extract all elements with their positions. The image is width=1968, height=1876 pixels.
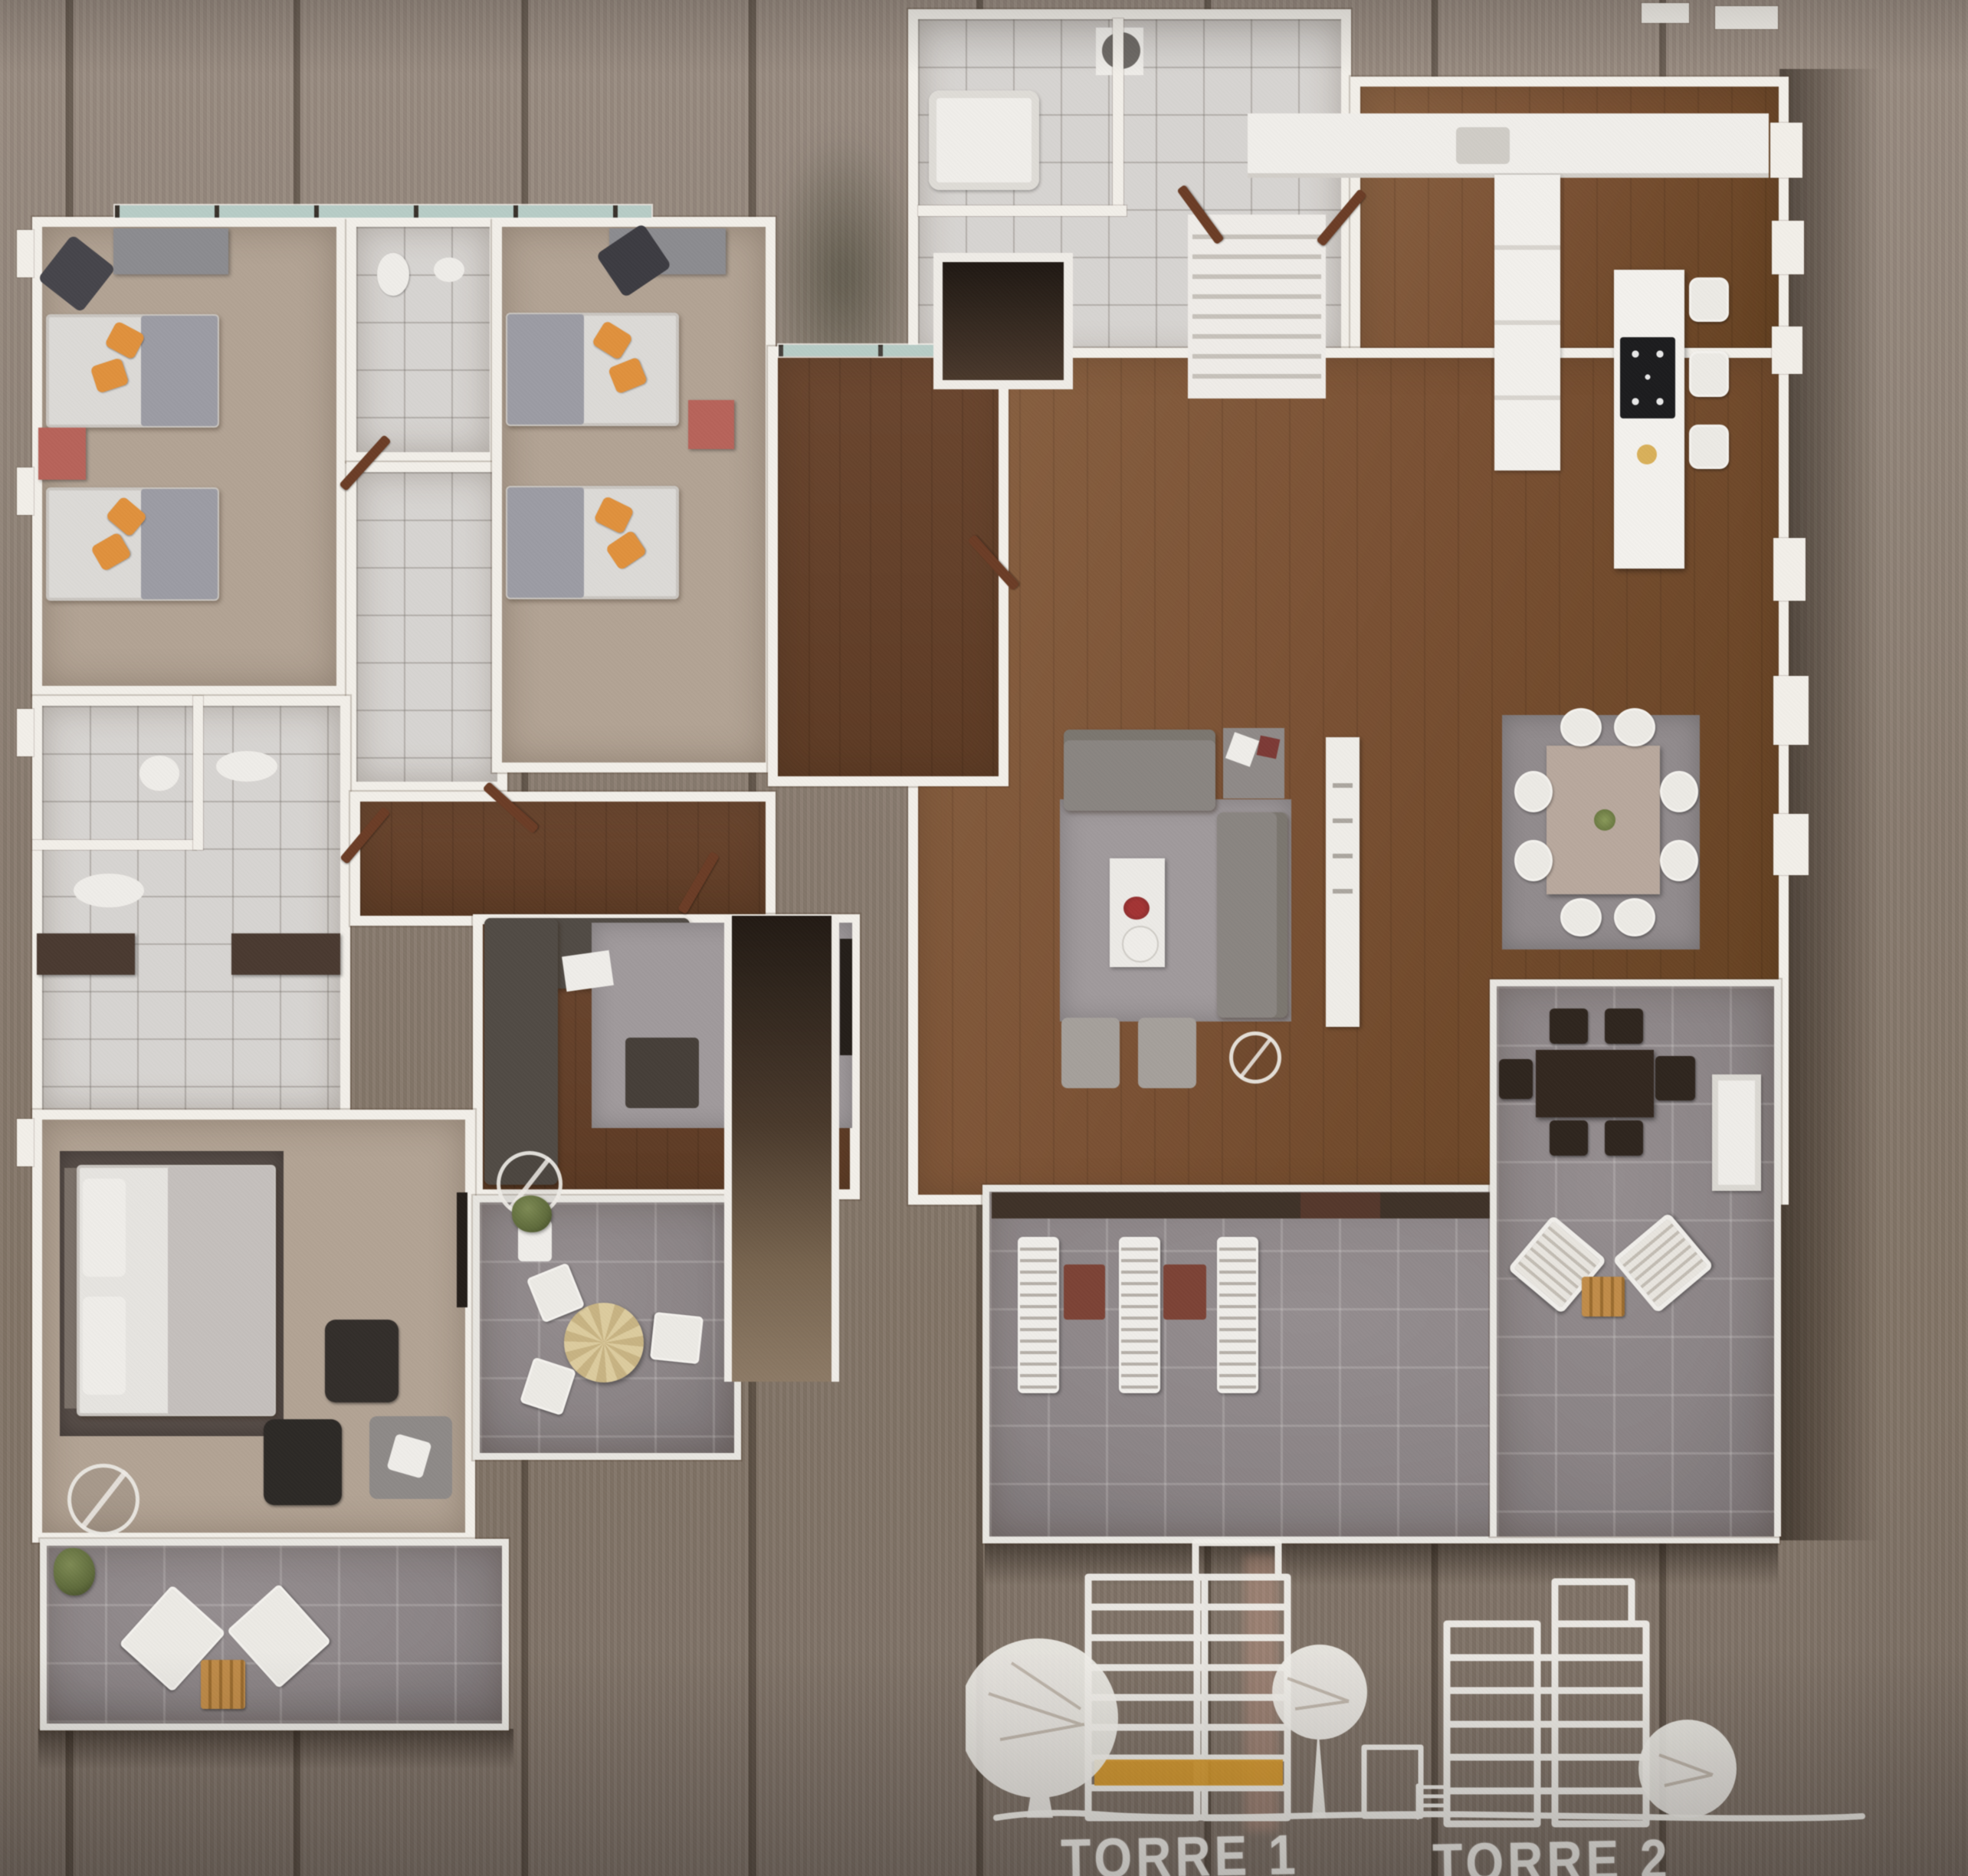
window-sill bbox=[1770, 123, 1802, 178]
tv-panel bbox=[840, 939, 852, 1055]
single-bed bbox=[506, 486, 679, 599]
kitchen-sink bbox=[1456, 127, 1510, 164]
pilaster bbox=[17, 467, 34, 515]
orange-pillow bbox=[90, 357, 129, 393]
dining-chair bbox=[1660, 840, 1698, 881]
sun-lounger bbox=[1119, 1237, 1160, 1393]
orange-pillow bbox=[90, 532, 132, 572]
master-bathroom bbox=[32, 696, 350, 1121]
parapet bbox=[1715, 6, 1778, 29]
outdoor-chair bbox=[1550, 1120, 1588, 1156]
tray bbox=[386, 1433, 431, 1478]
blanket bbox=[507, 314, 584, 425]
dining-chair bbox=[1514, 771, 1553, 812]
blanket bbox=[141, 316, 218, 426]
dining-chair bbox=[1660, 771, 1698, 812]
flowers bbox=[1123, 897, 1150, 920]
orange-pillow bbox=[593, 496, 635, 535]
elevator bbox=[933, 253, 1073, 389]
dining-chair bbox=[1614, 708, 1655, 746]
outdoor-chair bbox=[1655, 1056, 1695, 1100]
terrace-shadow-bottom-left bbox=[38, 1729, 513, 1769]
bar-stool bbox=[1689, 425, 1729, 469]
pilaster bbox=[17, 230, 34, 277]
staircase bbox=[1192, 219, 1321, 394]
sofa bbox=[1064, 730, 1215, 811]
terrace-side-table bbox=[201, 1660, 245, 1709]
vanity-dark bbox=[37, 933, 135, 975]
nightstand-red bbox=[38, 428, 86, 480]
ottoman-dark bbox=[625, 1038, 699, 1108]
fan-blade bbox=[1238, 1037, 1272, 1078]
dresser bbox=[113, 228, 228, 274]
orange-pillow bbox=[605, 530, 648, 570]
headboard bbox=[64, 1168, 77, 1409]
tower2-sketch bbox=[1447, 1582, 1646, 1824]
dining-chair bbox=[1614, 898, 1655, 936]
outdoor-chair bbox=[1550, 1009, 1588, 1044]
balcony-glass-top bbox=[115, 205, 651, 218]
blanket bbox=[507, 487, 584, 598]
floor-plan-photo: TORRE 1 TORRE 2 bbox=[0, 0, 1968, 1876]
orange-pillow bbox=[608, 356, 648, 394]
orange-pillow bbox=[104, 320, 146, 360]
side-table bbox=[1223, 728, 1284, 799]
ceiling-fan bbox=[1229, 1031, 1281, 1084]
king-bed bbox=[77, 1165, 276, 1416]
bathtub bbox=[929, 90, 1039, 190]
window-sill bbox=[1772, 221, 1804, 274]
outdoor-chair bbox=[1605, 1009, 1643, 1044]
blanket bbox=[141, 489, 218, 599]
pilaster bbox=[17, 709, 34, 756]
dining-chair bbox=[1560, 708, 1602, 746]
tower-elevation-sketch bbox=[966, 1517, 1893, 1876]
planter-box bbox=[1712, 1074, 1761, 1191]
window-sill bbox=[1773, 538, 1806, 601]
centerpiece bbox=[1594, 809, 1615, 831]
tower2-label: TORRE 2 bbox=[1390, 1825, 1713, 1876]
sun-lounger bbox=[1018, 1237, 1059, 1393]
tall-cabinets bbox=[1494, 175, 1560, 471]
window-sill bbox=[1773, 814, 1809, 875]
cooktop bbox=[1620, 337, 1675, 418]
tree-icon bbox=[1638, 1720, 1737, 1818]
terrace-chair bbox=[650, 1312, 704, 1364]
sun-lounger bbox=[1217, 1237, 1258, 1393]
single-bed bbox=[46, 314, 219, 428]
pouf bbox=[1061, 1018, 1120, 1088]
service-partition bbox=[1113, 18, 1123, 212]
orange-pillow bbox=[592, 320, 634, 361]
nightstand-red bbox=[688, 400, 734, 449]
sink bbox=[434, 257, 464, 282]
blanket bbox=[168, 1166, 274, 1415]
vanity-dark bbox=[231, 933, 340, 975]
terrace-side-table bbox=[1582, 1277, 1625, 1317]
sofa bbox=[1217, 812, 1287, 1018]
toilet bbox=[377, 253, 409, 296]
pouf bbox=[1138, 1018, 1196, 1088]
single-bed bbox=[506, 313, 679, 426]
pilaster bbox=[17, 1119, 34, 1166]
kitchen-island bbox=[1614, 270, 1684, 569]
outdoor-chair bbox=[1499, 1059, 1533, 1099]
armchair-dark bbox=[325, 1320, 399, 1402]
outdoor-dining-table bbox=[1536, 1050, 1654, 1117]
parapet bbox=[1642, 3, 1689, 23]
wall-shadow-right bbox=[1779, 69, 1894, 1540]
tower1-label: TORRE 1 bbox=[1018, 1821, 1341, 1876]
plant bbox=[54, 1548, 95, 1596]
ottoman-gray bbox=[369, 1416, 452, 1499]
planter-strip bbox=[992, 1192, 1490, 1218]
pillows bbox=[83, 1179, 126, 1277]
sectional-sofa bbox=[484, 918, 558, 1185]
highlighted-floor bbox=[1094, 1760, 1283, 1786]
magazines bbox=[562, 950, 614, 992]
bathroom-2 bbox=[346, 462, 507, 792]
bar-stool bbox=[1689, 277, 1729, 322]
lounger-side-table bbox=[1064, 1264, 1105, 1320]
service-partition bbox=[918, 205, 1127, 216]
single-bed bbox=[46, 487, 219, 601]
window-sill bbox=[1772, 326, 1802, 374]
console-table bbox=[1326, 737, 1360, 1027]
bath-partition bbox=[32, 840, 196, 850]
dining-chair bbox=[1560, 898, 1602, 936]
napkin bbox=[1225, 732, 1259, 766]
stairwell-dark bbox=[724, 916, 839, 1382]
bath-partition bbox=[193, 696, 203, 850]
sink bbox=[216, 751, 277, 782]
fan-blade bbox=[79, 1470, 127, 1530]
rendered-floor-plan: TORRE 1 TORRE 2 bbox=[0, 0, 1968, 1876]
fruit-bowl bbox=[1637, 444, 1657, 464]
window-sill bbox=[1773, 676, 1809, 745]
coffee-table bbox=[1110, 858, 1165, 967]
tv-panel bbox=[457, 1192, 467, 1307]
pillows bbox=[83, 1297, 126, 1395]
ceiling-fan bbox=[67, 1464, 139, 1536]
toilet bbox=[139, 756, 179, 791]
outdoor-chair bbox=[1605, 1120, 1643, 1156]
sink bbox=[74, 874, 144, 907]
dining-chair bbox=[1514, 840, 1553, 881]
armchair-dark bbox=[264, 1419, 342, 1505]
bathroom-1 bbox=[346, 217, 500, 462]
lounger-side-table bbox=[1163, 1264, 1206, 1320]
tray bbox=[1122, 926, 1159, 963]
plant bbox=[512, 1195, 552, 1232]
round-table bbox=[564, 1303, 644, 1382]
entry-hall bbox=[768, 346, 1009, 786]
red-box bbox=[1257, 736, 1281, 759]
bush-sketch bbox=[1364, 1747, 1421, 1816]
bar-stool bbox=[1689, 351, 1729, 397]
